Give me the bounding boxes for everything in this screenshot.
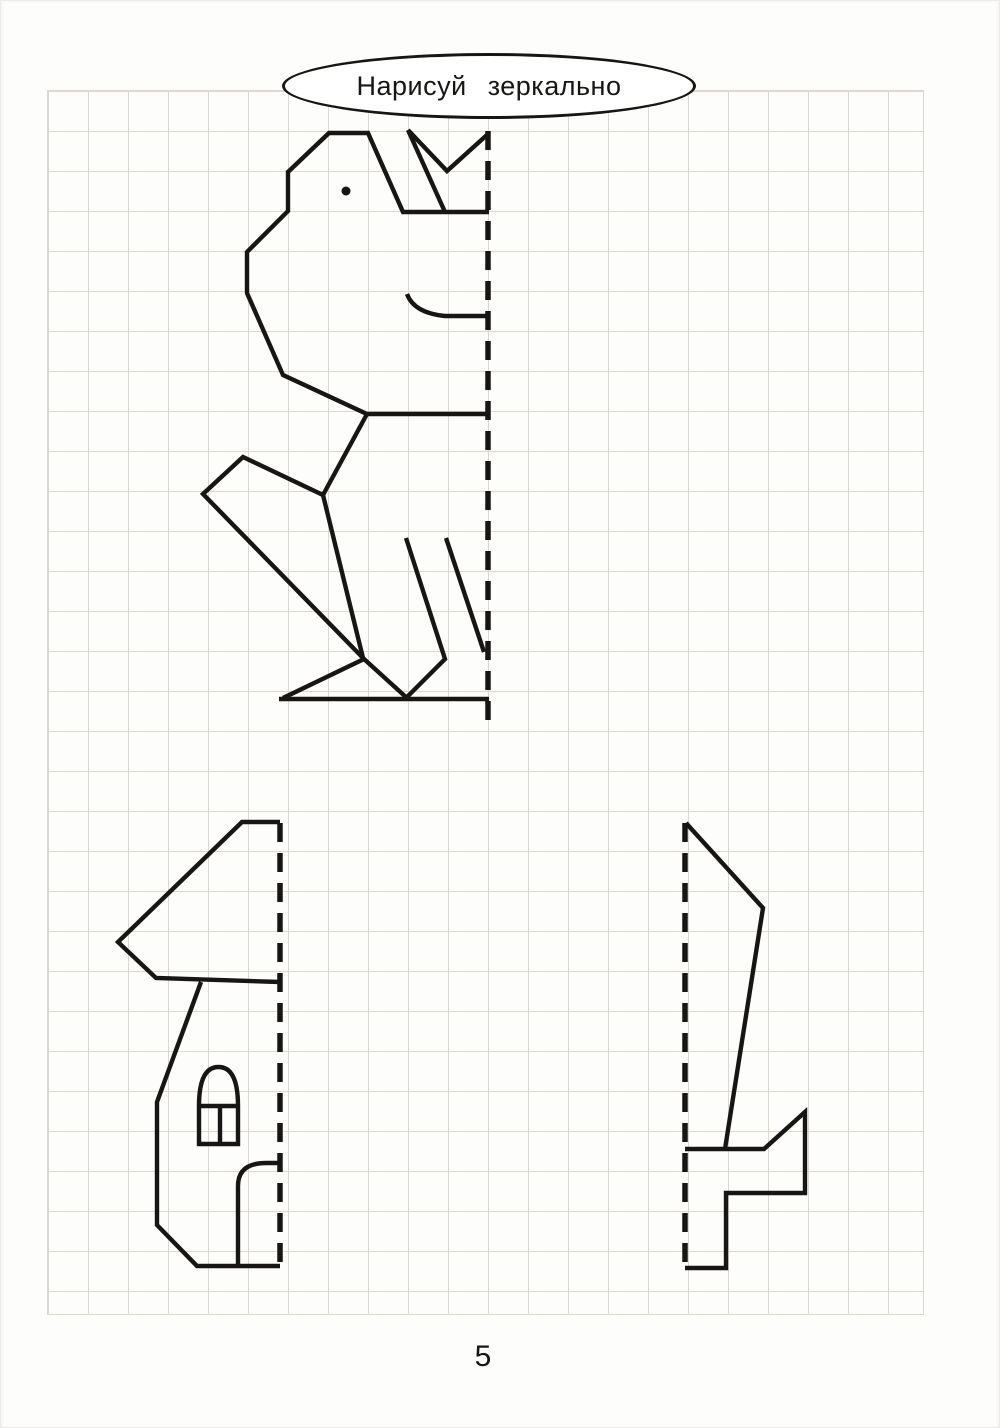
dog-figure [203,130,489,727]
dog-outline-segment [247,133,489,414]
dog-outline-segment [408,130,488,171]
workbook-page: Нарисуй зеркально 5 [0,0,1000,1428]
dog-outline-segment [406,538,445,697]
task-title: Нарисуй зеркально [357,71,622,102]
dog-outline-segment [446,538,484,652]
house-outline-segment [118,822,280,982]
house-figure [118,822,280,1267]
dog-eye-dot [342,187,351,196]
sword-figure [685,823,805,1268]
task-title-bubble: Нарисуй зеркально [282,53,696,119]
dog-outline-segment [408,130,445,212]
dog-curve-segment [407,294,489,316]
dog-outline-segment [283,659,407,698]
sword-outline-segment [686,823,763,1149]
worksheet-drawing [0,0,1000,1428]
sword-outline-segment [685,1112,805,1268]
house-curve-segment [238,1163,280,1266]
